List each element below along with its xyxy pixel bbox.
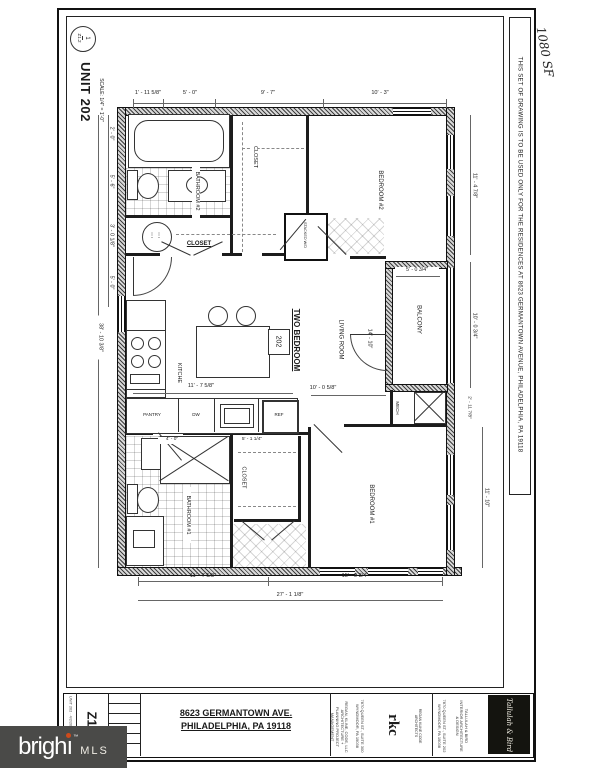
closet1-rod (238, 452, 296, 454)
dim-right-3: 11' - 10" (483, 482, 490, 514)
dim-left-overall: 38' - 10 3/8" (97, 316, 104, 360)
burner-1 (131, 337, 144, 350)
washer-dots: ⋮⋮ (150, 232, 162, 240)
dim-top-1: 5' - 0" (175, 90, 205, 98)
dim-right-2: 2' - 11 7/8" (465, 389, 472, 427)
balcony-wall-left (386, 262, 392, 391)
dim-line-bottom-1 (138, 581, 443, 582)
architect-address: 7870 QUEEN ST., SUITE 300 WYNDMOOR, PA 1… (353, 699, 365, 753)
wall-bath2-closet (230, 115, 233, 253)
dim-bottom-1: 15' - 0 3/4" (332, 573, 378, 581)
wall-mech-left (390, 390, 393, 424)
bathtub-basin (134, 120, 224, 162)
callout-sheet: Z1.2 (76, 33, 82, 42)
closet1-label: CLOSET (240, 458, 247, 498)
brightmls-watermark: brighı ™ MLS (0, 726, 127, 768)
sink-basin (224, 408, 250, 424)
bedroom1-right-window-1 (447, 455, 454, 495)
living-label: LIVING ROOM (338, 314, 345, 366)
architect-services: REGAN, KLINE, CODE, LLC ARCHITECTURE + P… (331, 700, 347, 754)
bedroom1-vestibule-floor (232, 524, 306, 568)
wall-entrycloset-2 (222, 253, 242, 256)
wall-bath2-bottom (125, 215, 230, 218)
entry-closet-label: CLOSET (178, 239, 220, 248)
bedroom1-bottom-window-3 (418, 568, 443, 575)
dim-right-0: 11' - 4 7/8" (471, 166, 478, 206)
dim-kitchen-width: 11' - 7 5/8" (178, 383, 224, 391)
dim-bottom-0: 11' - 7 5/8" (180, 573, 226, 581)
bedroom2-right-window-1 (447, 135, 454, 169)
wall-bottom (118, 568, 461, 575)
designer-name: TALLULAH & BIRD INTERIOR ARCHITECTURE & … (454, 699, 468, 753)
dim-left-1: 5' - 6" (108, 169, 115, 195)
closet-top-dash-v (242, 122, 244, 252)
bedroom2-label: BEDROOM #2 (376, 160, 384, 220)
wall-closet1-right (298, 436, 301, 522)
bedroom1-right-window-2 (447, 505, 454, 550)
wall-bedroom1-left (308, 427, 311, 568)
bathroom1-label: BATHROOM #1 (183, 487, 191, 543)
wall-bedroom2-bottom-2 (350, 256, 386, 259)
counter-divider-1 (178, 398, 179, 432)
designer-address: 7870 QUEEN ST., SUITE 202 WYNDMOOR, PA 1… (435, 699, 447, 753)
toilet1-bowl (137, 487, 159, 513)
burner-4 (148, 355, 161, 368)
closet1-shelf (238, 506, 296, 508)
wall-bath1-right (230, 435, 233, 568)
wall-bedroom1-top (344, 424, 447, 427)
bedroom2-right-window-2 (447, 196, 454, 236)
dim-balcony-width: 5' - 0 3/4" (395, 267, 439, 275)
wall-entrycloset-1 (125, 253, 160, 256)
bedroom2-top-window (393, 108, 431, 115)
dim-left-3: 5' - 0" (108, 270, 115, 296)
dim-top-3: 10' - 3" (362, 90, 398, 98)
dim-left-2: 3' - 0 1/8" (108, 219, 115, 253)
dim-line-balcony (396, 276, 440, 277)
unit-number: 202 (274, 332, 283, 352)
entry-closet-rod (176, 234, 276, 236)
stool-2 (236, 306, 256, 326)
counter-divider-3 (258, 398, 259, 432)
bedroom1-label: BEDROOM #1 (367, 474, 375, 534)
callout-number: 1 (82, 36, 90, 39)
dim-bottom-overall: 27' - 1 1/8" (265, 592, 315, 600)
dim-top-2: 9' - 7" (251, 90, 285, 98)
balcony-rail (447, 268, 454, 383)
burner-3 (131, 355, 144, 368)
wall-left (118, 108, 125, 575)
dim-living-width: 10' - 0 5/8" (298, 385, 348, 393)
balcony-label: BALCONY (416, 293, 423, 347)
architect-logo: rkc (384, 703, 402, 747)
architect-name: REGAN KLINE CODE ARCHITECTS (413, 699, 423, 753)
vanity1-sink (133, 530, 155, 548)
toilet2-bowl (137, 173, 159, 199)
kitchen-left-window (118, 296, 125, 332)
stool-1 (208, 306, 228, 326)
brightmls-mls: MLS (80, 745, 109, 757)
designer-logo: Tallulah & Bird (504, 698, 514, 752)
dim-right-1: 10' - 0 3/4" (471, 306, 478, 346)
dim-line-living (311, 395, 386, 396)
bathroom2-label: BATHROOM #2 (192, 164, 200, 218)
dw-label: DW (183, 412, 209, 419)
burner-2 (148, 337, 161, 350)
counter-divider-2 (214, 398, 215, 432)
detail-callout: 1 Z1.2 (70, 26, 96, 52)
island (196, 326, 270, 378)
dim-closet1: 5' - 1 1/4" (235, 437, 269, 444)
pantry-label: PANTRY (131, 412, 173, 419)
dim-living-depth: 14' - 10" (366, 324, 373, 354)
brightmls-wordmark: brighı (18, 735, 72, 759)
ref-label: REF (266, 412, 292, 419)
project-address-2: PHILADELPHIA, PA 19118 (150, 721, 322, 732)
dim-line-kitchen (133, 393, 293, 394)
closet-top-label: CLOSET (250, 137, 258, 177)
side-note-text: THIS SET OF DRAWING IS TO BE USED ONLY F… (515, 19, 524, 491)
mech-label: MECH (394, 394, 400, 422)
balcony-wall-bottom (386, 385, 447, 391)
stove-panel (130, 374, 160, 384)
dim-shower: 4' - 0" (158, 437, 186, 444)
brightmls-tm: ™ (73, 734, 78, 740)
entry-door-leaf (133, 257, 134, 295)
dim-top-0: 1' - 11 5/8" (128, 90, 168, 98)
dim-left-0: 2' - 0" (108, 121, 115, 147)
sheet-title: UNIT 202 (79, 52, 93, 132)
floor-plan-sheet: THIS SET OF DRAWING IS TO BE USED ONLY F… (0, 0, 602, 768)
dim-line-bottom-2 (138, 600, 443, 601)
dim-line-top (133, 103, 447, 104)
project-address-1: 8623 GERMANTOWN AVE. (150, 708, 322, 719)
unit-type-label: TWO BEDROOM (291, 301, 301, 379)
